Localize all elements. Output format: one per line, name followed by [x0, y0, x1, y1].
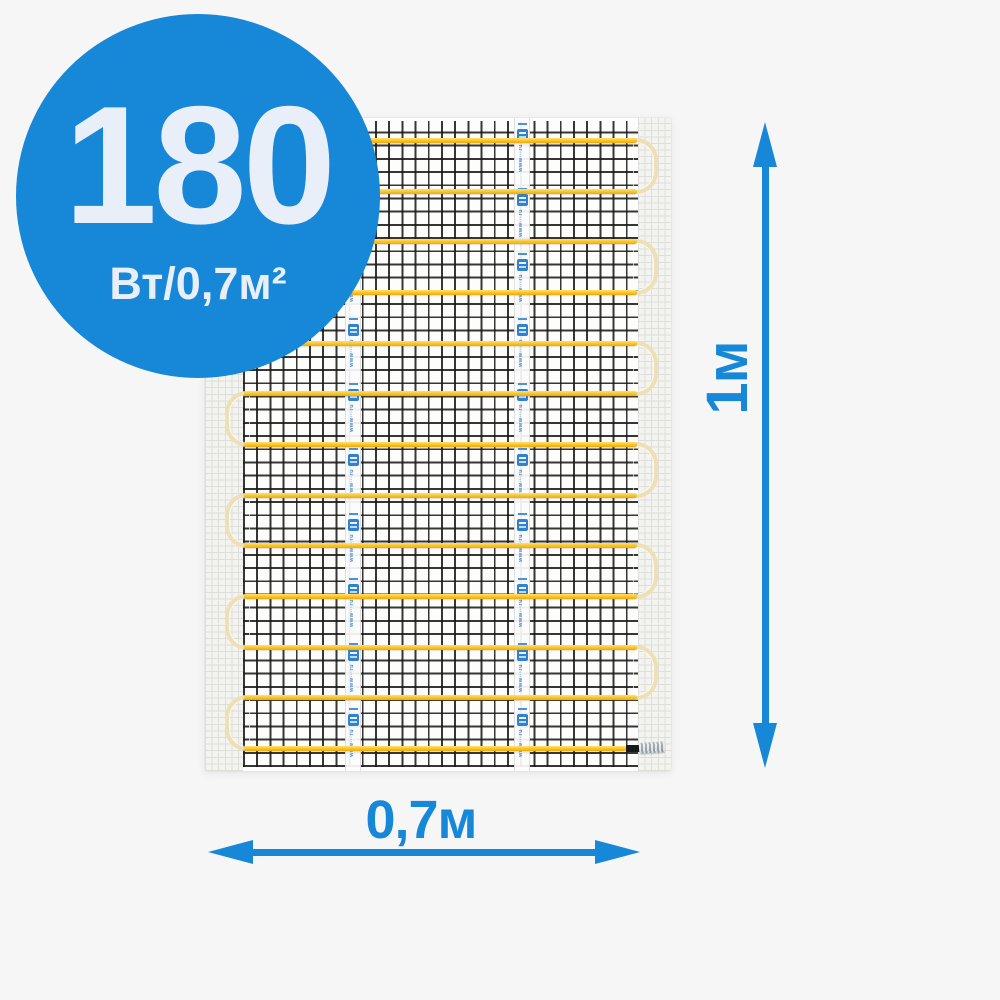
cable-loop-left — [225, 695, 250, 751]
heating-cable-run — [244, 442, 637, 447]
tape-print-unit: www···ru — [348, 573, 359, 638]
brand-logo-icon — [348, 324, 359, 336]
arrow-left-icon — [208, 840, 253, 864]
brand-logo-icon — [517, 714, 528, 726]
heating-cable-run — [244, 645, 637, 650]
tape-watermark-text: www···ru — [519, 534, 525, 562]
tape-dash — [518, 513, 527, 515]
tape-watermark-text: www···ru — [519, 599, 525, 627]
heating-cable-run — [244, 543, 637, 548]
cable-loop-left — [225, 594, 250, 650]
tape-dash — [518, 253, 527, 255]
tape-print-unit: www···ru — [348, 443, 359, 508]
tape-dash — [349, 448, 358, 450]
tape-watermark-text: www···ru — [519, 729, 525, 757]
arrow-right-icon — [595, 840, 640, 864]
tape-watermark-text: www···ru — [350, 404, 356, 432]
tape-watermark-text: www···ru — [350, 729, 356, 757]
tape-watermark-text: www···ru — [519, 664, 525, 692]
tape-print-unit: www···ru — [517, 378, 528, 443]
tape-print-unit: www···ru — [517, 313, 528, 378]
tape-dash — [349, 318, 358, 320]
tape-dash — [518, 123, 527, 125]
connector-sleeve-icon — [639, 741, 666, 754]
tape-print-unit: www···ru — [517, 118, 528, 183]
heating-cable-run — [244, 493, 637, 498]
tape-watermark-text: www···ru — [350, 664, 356, 692]
tape-dash — [518, 708, 527, 710]
power-value: 180 — [64, 81, 332, 249]
tape-print-unit: www···ru — [517, 443, 528, 508]
power-badge: 180 Вт/0,7м² — [16, 14, 380, 378]
tape-print-unit: www···ru — [517, 248, 528, 313]
product-image: www···ruwww···ruwww···ruwww···ruwww···ru… — [0, 0, 1000, 1000]
heating-cable-run — [244, 695, 637, 700]
brand-logo-icon — [348, 714, 359, 726]
brand-logo-icon — [348, 454, 359, 466]
tape-dash — [349, 578, 358, 580]
brand-logo-icon — [517, 519, 528, 531]
tape-dash — [518, 578, 527, 580]
heating-cable-run — [244, 746, 627, 751]
brand-logo-icon — [517, 454, 528, 466]
tape-print-unit: www···ru — [517, 703, 528, 768]
tape-dash — [349, 513, 358, 515]
cable-loop-left — [225, 391, 250, 447]
tape-dash — [349, 708, 358, 710]
width-dimension-label: 0,7м — [321, 789, 521, 851]
heating-cable-run — [244, 594, 637, 599]
brand-logo-icon — [517, 259, 528, 271]
tape-print-unit: www···ru — [348, 508, 359, 573]
brand-logo-icon — [348, 649, 359, 661]
tape-print-unit: www···ru — [348, 313, 359, 378]
brand-logo-icon — [517, 649, 528, 661]
brand-logo-icon — [348, 519, 359, 531]
power-unit: Вт/0,7м² — [109, 261, 286, 306]
tape-print-unit: www···ru — [517, 508, 528, 573]
height-dimension-label: 1м — [682, 333, 772, 423]
tape-watermark-text: www···ru — [350, 599, 356, 627]
tape-dash — [518, 448, 527, 450]
arrow-up-icon — [753, 122, 777, 167]
heating-cable-run — [244, 391, 637, 396]
height-arrow-shaft — [762, 160, 769, 726]
tape-print-unit: www···ru — [517, 573, 528, 638]
tape-print-unit: www···ru — [348, 378, 359, 443]
tape-watermark-text: www···ru — [519, 404, 525, 432]
tape-watermark-text: www···ru — [519, 209, 525, 237]
tape-print-unit: www···ru — [348, 703, 359, 768]
tape-watermark-text: www···ru — [350, 534, 356, 562]
tape-dash — [518, 383, 527, 385]
arrow-down-icon — [753, 723, 777, 768]
brand-logo-icon — [517, 324, 528, 336]
tape-watermark-text: www···ru — [519, 144, 525, 172]
tape-watermark-text: www···ru — [519, 274, 525, 302]
tape-dash — [349, 383, 358, 385]
tape-dash — [518, 318, 527, 320]
brand-logo-icon — [517, 194, 528, 206]
cable-loop-left — [225, 493, 250, 548]
